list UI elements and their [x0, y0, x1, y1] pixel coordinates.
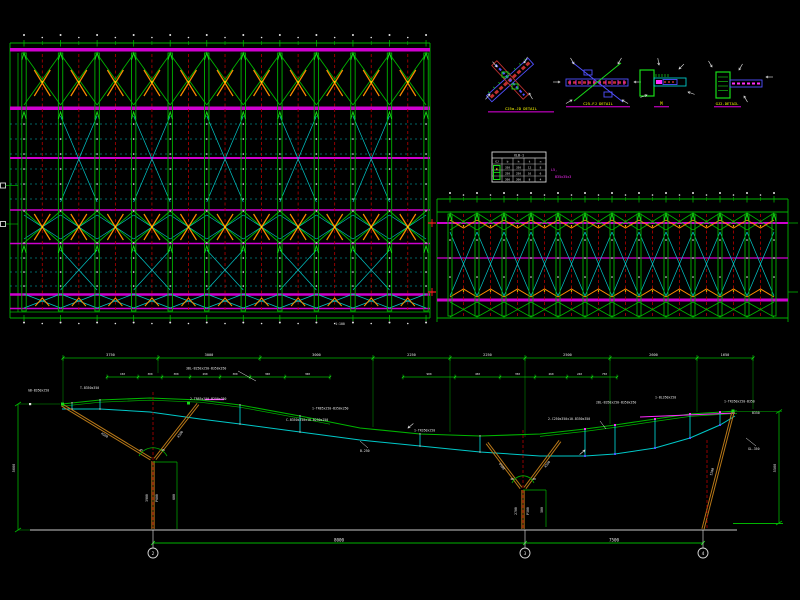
node-dot [611, 192, 613, 194]
node-dot [133, 271, 135, 273]
node-dot [133, 153, 135, 155]
node-dot [517, 290, 518, 291]
annotation-text: 1-BL350x250 [655, 396, 676, 400]
table-cell: 350 [516, 166, 521, 170]
node-dot [463, 225, 464, 226]
node-dot [96, 285, 98, 287]
node-dot [96, 183, 98, 185]
node-dot [571, 290, 572, 291]
member-size-label: 600 [172, 494, 176, 500]
node-dot [151, 37, 153, 39]
node-dot [243, 271, 245, 273]
strut-node [654, 418, 656, 420]
node-dot [544, 194, 546, 196]
node-dot [679, 194, 681, 196]
node-dot [425, 285, 427, 287]
node-dot [279, 285, 281, 287]
angle-label: 45 [139, 448, 143, 452]
node-dot [206, 123, 208, 125]
node-dot [530, 257, 532, 259]
member-size-label: P600 [155, 494, 159, 502]
node-dot [746, 276, 748, 278]
node-dot [611, 276, 613, 278]
member-size-label: 2700 [514, 507, 518, 515]
node-dot [530, 192, 532, 194]
table-cell: 250 [516, 172, 521, 176]
node-dot [638, 276, 640, 278]
node-dot [243, 285, 245, 287]
node-dot [96, 242, 97, 243]
node-dot [598, 290, 599, 291]
node-dot [352, 153, 354, 155]
node-dot [224, 37, 226, 39]
node-dot [389, 210, 390, 211]
node-dot [773, 276, 775, 278]
node-dot [746, 257, 748, 259]
node-dot [133, 123, 135, 125]
node-dot [665, 257, 667, 259]
node-dot [389, 34, 391, 36]
strut-node [719, 424, 721, 426]
annotation-text: GB-B350x250 [28, 389, 49, 393]
node-dot [23, 183, 25, 185]
node-dot [206, 285, 208, 287]
node-dot [297, 226, 299, 228]
node-dot [96, 138, 98, 140]
node-dot [389, 242, 390, 243]
strut-node [614, 424, 616, 426]
node-dot [243, 257, 245, 259]
node-dot [389, 138, 391, 140]
node-dot [479, 451, 480, 452]
node-dot [389, 168, 391, 170]
node-dot [206, 322, 208, 324]
node-dot [407, 226, 409, 228]
node-dot [60, 271, 62, 273]
node-dot [733, 225, 734, 226]
node-dot [60, 183, 62, 185]
node-dot [463, 194, 465, 196]
node-dot [316, 168, 318, 170]
node-dot [719, 257, 721, 259]
dim-text: 300 [147, 372, 152, 376]
annotation-text: 3BL-B250x250-B350x350 [186, 367, 226, 371]
node-dot [389, 198, 391, 200]
node-dot [23, 257, 25, 259]
node-dot [60, 153, 62, 155]
table-cell: 200 [505, 178, 510, 182]
node-dot [133, 183, 135, 185]
dim-text: 2600 [649, 353, 658, 357]
dim-text-span-1: 8000 [334, 538, 345, 543]
node-dot [598, 225, 599, 226]
node-dot [114, 81, 116, 83]
node-dot [133, 242, 134, 243]
node-dot [315, 34, 317, 36]
dim-text: 300 [173, 372, 178, 376]
node-dot [60, 285, 62, 287]
node-dot [96, 123, 98, 125]
node-dot [243, 138, 245, 140]
node-dot [652, 225, 653, 226]
node-dot [243, 242, 244, 243]
node-dot [334, 226, 336, 228]
node-dot [279, 322, 281, 324]
node-dot [773, 239, 775, 241]
node-dot [476, 257, 478, 259]
node-dot [503, 239, 505, 241]
node-dot [169, 153, 171, 155]
node-dot [370, 37, 372, 39]
node-dot [352, 183, 354, 185]
dim-text: 3000 [312, 353, 321, 357]
node-dot [476, 239, 478, 241]
node-dot [151, 226, 153, 228]
node-dot [773, 257, 775, 259]
node-dot [261, 81, 263, 83]
node-dot [352, 168, 354, 170]
node-dot [530, 276, 532, 278]
node-dot [41, 81, 43, 83]
node-dot [151, 81, 153, 83]
detail-label-underline [714, 106, 741, 107]
node-dot [638, 257, 640, 259]
node-dot [96, 198, 98, 200]
node-dot [60, 322, 62, 324]
node-dot [419, 433, 420, 434]
node-dot [206, 271, 208, 273]
annotation-text: 2-TR85x250-B250x350 [190, 397, 227, 401]
node-dot [261, 323, 263, 325]
node-dot [60, 242, 61, 243]
node-dot [279, 168, 281, 170]
detail-label-4: GJ2-DETAIL [716, 101, 740, 106]
node-dot [206, 168, 208, 170]
node-dot [279, 183, 281, 185]
node-dot [316, 242, 317, 243]
node-dot [544, 290, 545, 291]
grid-bubble-label: 2 [152, 551, 155, 557]
node-dot [206, 210, 207, 211]
node-dot [719, 239, 721, 241]
node-dot [370, 323, 372, 325]
node-dot [733, 194, 735, 196]
node-dot [692, 257, 694, 259]
node-dot [71, 402, 72, 403]
node-dot [389, 183, 391, 185]
node-dot [425, 242, 426, 243]
annotation-text: 1-TR350x250 [414, 429, 435, 433]
node-dot [133, 168, 135, 170]
node-dot [425, 271, 427, 273]
annotation-text: GL-350 [748, 447, 760, 451]
node-dot [449, 257, 451, 259]
node-dot [352, 138, 354, 140]
node-dot [169, 183, 171, 185]
cad-rect [656, 80, 662, 84]
node-dot [571, 194, 573, 196]
node-dot [170, 210, 171, 211]
angle-label: 40 [510, 477, 514, 481]
node-dot [584, 257, 586, 259]
node-dot [746, 192, 748, 194]
node-dot [23, 138, 25, 140]
node-dot [133, 285, 135, 287]
node-dot [352, 285, 354, 287]
node-dot [60, 34, 62, 36]
node-dot [584, 239, 586, 241]
node-dot [206, 257, 208, 259]
node-dot [279, 198, 281, 200]
annotation-text: B-250 [360, 449, 370, 453]
node-dot [261, 226, 263, 228]
node-dot [517, 225, 518, 226]
node-dot [243, 210, 244, 211]
node-dot [425, 198, 427, 200]
node-dot [352, 34, 354, 36]
strut-node [654, 447, 656, 449]
node-dot [638, 239, 640, 241]
node-dot [60, 198, 62, 200]
node-dot [316, 138, 318, 140]
node-dot [206, 34, 208, 36]
node-dot [297, 323, 299, 325]
node-dot [389, 285, 391, 287]
node-dot [261, 37, 263, 39]
detail-label-underline [654, 106, 669, 107]
node-dot [60, 123, 62, 125]
node-dot [652, 194, 654, 196]
member-size-label: P500 [526, 507, 530, 515]
annotation-text: B350 [752, 411, 760, 415]
node-dot [665, 239, 667, 241]
node-dot [316, 153, 318, 155]
node-dot [773, 192, 775, 194]
node-dot [243, 168, 245, 170]
node-dot [490, 290, 491, 291]
table-cell: 250 [505, 172, 510, 176]
support-node [61, 403, 64, 406]
dim-text-span-2: 7500 [609, 538, 620, 543]
node-dot [96, 168, 98, 170]
node-dot [224, 81, 226, 83]
annotation-text: T-B350x350 [80, 386, 99, 390]
node-dot [279, 271, 281, 273]
dim-text: 150 [120, 372, 125, 376]
node-dot [389, 123, 391, 125]
magenta-band [10, 107, 430, 111]
node-dot [476, 192, 478, 194]
node-dot [652, 290, 653, 291]
cad-drawing-canvas[interactable]: GJbhtn35035012825025010620020084 4545404… [0, 0, 800, 600]
dim-text: 350 [515, 372, 520, 376]
node-dot [557, 192, 559, 194]
dim-text: 260 [548, 372, 553, 376]
table-header: b [507, 160, 509, 164]
node-dot [557, 276, 559, 278]
detail-label-2: C25-FJ DETAIL [583, 101, 613, 106]
node-dot [419, 445, 420, 446]
node-dot [96, 153, 98, 155]
node-dot [239, 404, 240, 405]
annotation-text: 2-C250x350x10-B350x350 [548, 417, 590, 421]
node-dot [316, 285, 318, 287]
node-dot [60, 168, 62, 170]
dim-text: 300 [305, 372, 310, 376]
node-dot [316, 257, 318, 259]
node-dot [23, 322, 25, 324]
dim-text: 300 [232, 372, 237, 376]
node-dot [279, 210, 280, 211]
annotation-text: 2BL-B350x250-B350x350 [596, 401, 636, 405]
grid-bubble-label: 4 [702, 551, 705, 557]
table-title: XLB-1 [514, 154, 524, 158]
dim-text: 1650 [721, 353, 730, 357]
node-dot [352, 322, 354, 324]
node-dot [299, 431, 300, 432]
node-dot [279, 138, 281, 140]
node-dot [544, 225, 545, 226]
dim-text: 290 [202, 372, 207, 376]
node-dot [584, 192, 586, 194]
node-dot [407, 37, 409, 39]
node-dot [315, 322, 317, 324]
table-cell: 12 [528, 166, 532, 170]
node-dot [188, 226, 190, 228]
node-dot [23, 34, 25, 36]
strut-node [584, 455, 586, 457]
node-dot [503, 257, 505, 259]
node-dot [334, 81, 336, 83]
node-dot [41, 37, 43, 39]
node-dot [23, 242, 24, 243]
node-dot [169, 168, 171, 170]
node-dot [23, 198, 25, 200]
node-dot [530, 239, 532, 241]
support-node [29, 403, 31, 405]
node-dot [425, 210, 426, 211]
annotation-text: C-B350x250x10-B250x250 [286, 418, 328, 422]
strut-node [689, 437, 691, 439]
support-node [732, 410, 735, 413]
node-dot [96, 257, 98, 259]
node-dot [584, 276, 586, 278]
node-dot [316, 123, 318, 125]
node-dot [239, 423, 240, 424]
node-dot [206, 198, 208, 200]
node-dot [389, 257, 391, 259]
node-dot [352, 271, 354, 273]
node-dot [206, 153, 208, 155]
node-dot [496, 168, 498, 170]
node-dot [60, 210, 61, 211]
node-dot [78, 226, 80, 228]
node-dot [206, 138, 208, 140]
node-dot [370, 226, 372, 228]
node-dot [23, 285, 25, 287]
dim-text: 450 [475, 372, 480, 376]
node-dot [169, 198, 171, 200]
node-dot [78, 323, 80, 325]
node-dot [449, 239, 451, 241]
node-dot [133, 322, 135, 324]
node-dot [706, 290, 707, 291]
member-size-label: 500 [540, 507, 544, 513]
plan-scale-note: 1:100 [335, 322, 345, 326]
detail-label-underline [566, 106, 630, 107]
table-cell: 10 [528, 172, 532, 176]
node-dot [133, 210, 134, 211]
node-dot [352, 242, 353, 243]
node-dot [476, 276, 478, 278]
node-dot [96, 322, 98, 324]
node-dot [389, 322, 391, 324]
node-dot [169, 138, 171, 140]
grid-bubble-label: 3 [524, 551, 527, 557]
table-note-2: B35x35x3 [555, 175, 571, 179]
node-dot [611, 239, 613, 241]
node-dot [706, 225, 707, 226]
node-dot [760, 225, 761, 226]
strut-node [614, 453, 616, 455]
strut-node [584, 428, 586, 430]
node-dot [242, 34, 244, 36]
node-dot [719, 192, 721, 194]
node-dot [23, 210, 24, 211]
node-dot [479, 435, 480, 436]
dim-text: 750 [602, 372, 607, 376]
table-cell: 350 [505, 166, 510, 170]
node-dot [41, 226, 43, 228]
node-dot [243, 153, 245, 155]
node-dot [243, 123, 245, 125]
node-dot [151, 323, 153, 325]
node-dot [352, 123, 354, 125]
member-size-label: 3900 [145, 494, 149, 502]
node-dot [279, 153, 281, 155]
node-dot [463, 290, 464, 291]
node-dot [425, 322, 427, 324]
node-dot [299, 415, 300, 416]
table-header: h [518, 160, 520, 164]
annotation-text: 1-TR85x250-B350x250 [312, 407, 349, 411]
node-dot [169, 123, 171, 125]
cad-viewport: GJbhtn35035012825025010620020084 4545404… [0, 0, 800, 600]
node-dot [449, 276, 451, 278]
node-dot [206, 242, 207, 243]
node-dot [96, 210, 97, 211]
node-dot [692, 276, 694, 278]
node-dot [733, 290, 734, 291]
node-dot [243, 183, 245, 185]
table-header: n [540, 160, 542, 164]
node-dot [23, 271, 25, 273]
node-dot [557, 239, 559, 241]
node-dot [78, 81, 80, 83]
node-dot [425, 34, 427, 36]
dim-text: 900 [426, 372, 431, 376]
detail-label-underline [488, 111, 554, 112]
node-dot [133, 138, 135, 140]
node-dot [169, 322, 171, 324]
node-dot [517, 194, 519, 196]
node-dot [316, 183, 318, 185]
node-dot [99, 408, 100, 409]
node-dot [133, 257, 135, 259]
node-dot [425, 183, 427, 185]
node-dot [389, 153, 391, 155]
node-dot [60, 138, 62, 140]
